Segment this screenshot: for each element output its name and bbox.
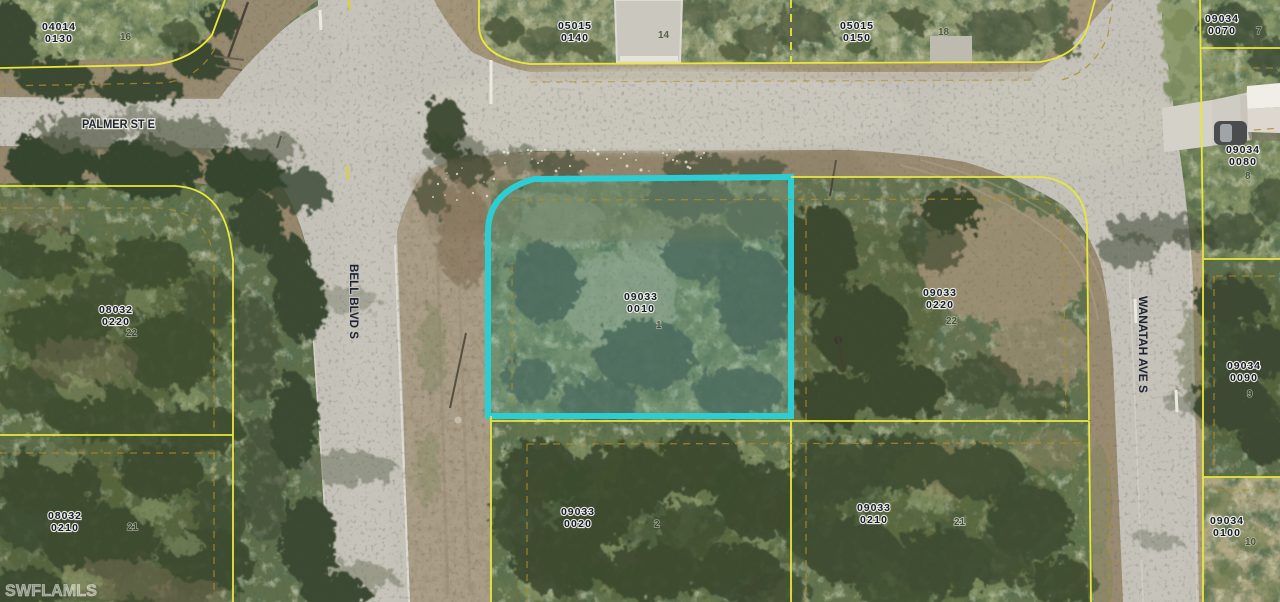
svg-text:PALMER ST E: PALMER ST E (82, 119, 155, 131)
svg-text:10: 10 (1245, 537, 1257, 548)
svg-text:04014: 04014 (42, 21, 75, 33)
svg-text:0210: 0210 (860, 514, 887, 526)
svg-text:09033: 09033 (561, 506, 594, 518)
svg-text:0070: 0070 (1208, 25, 1235, 37)
svg-text:21: 21 (127, 522, 139, 533)
svg-text:9: 9 (1247, 389, 1253, 400)
svg-text:09033: 09033 (923, 287, 956, 299)
svg-text:16: 16 (120, 32, 132, 43)
svg-text:05015: 05015 (840, 20, 873, 32)
svg-text:BELL BLVD S: BELL BLVD S (347, 264, 359, 339)
svg-text:09034: 09034 (1226, 144, 1259, 156)
svg-text:21: 21 (954, 517, 966, 528)
svg-text:0140: 0140 (561, 32, 588, 44)
svg-text:0150: 0150 (843, 32, 870, 44)
svg-text:0020: 0020 (564, 518, 591, 530)
svg-text:0130: 0130 (45, 33, 72, 45)
svg-text:22: 22 (126, 328, 138, 339)
svg-text:0100: 0100 (1213, 527, 1240, 539)
svg-text:08032: 08032 (48, 510, 81, 522)
svg-text:14: 14 (658, 30, 670, 41)
svg-text:09034: 09034 (1227, 360, 1260, 372)
svg-text:08032: 08032 (99, 304, 132, 316)
svg-text:WANATAH AVE S: WANATAH AVE S (1136, 296, 1148, 393)
svg-text:7: 7 (1256, 26, 1262, 37)
svg-text:0220: 0220 (102, 316, 129, 328)
svg-text:09033: 09033 (624, 291, 657, 303)
svg-text:0090: 0090 (1230, 372, 1257, 384)
svg-text:0080: 0080 (1229, 156, 1256, 168)
svg-text:1: 1 (656, 320, 662, 331)
svg-text:09034: 09034 (1205, 13, 1238, 25)
svg-text:2: 2 (654, 519, 660, 530)
svg-text:22: 22 (946, 316, 958, 327)
svg-text:09034: 09034 (1210, 515, 1243, 527)
svg-text:09033: 09033 (857, 502, 890, 514)
svg-text:SWFLAMLS: SWFLAMLS (5, 582, 97, 600)
svg-text:0010: 0010 (627, 303, 654, 315)
svg-text:18: 18 (938, 27, 950, 38)
svg-text:0210: 0210 (51, 522, 78, 534)
svg-text:05015: 05015 (558, 20, 591, 32)
svg-text:8: 8 (1245, 171, 1251, 182)
svg-text:0220: 0220 (926, 299, 953, 311)
